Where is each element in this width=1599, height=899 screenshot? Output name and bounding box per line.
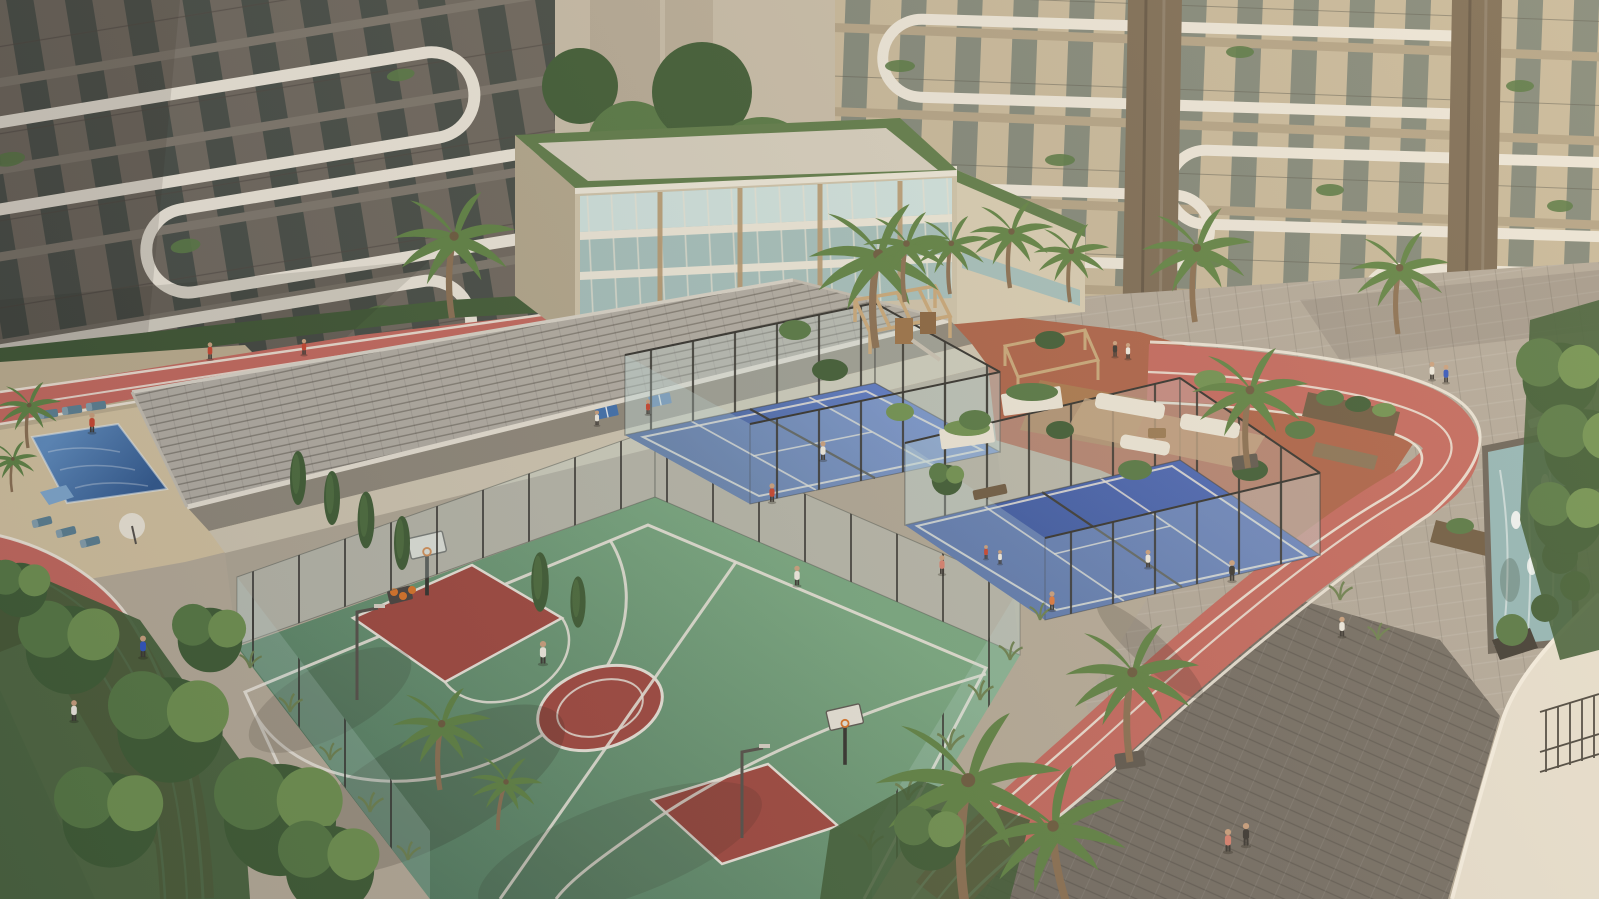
light-overlay [0,0,1599,899]
aerial-render-stage: Aerial architectural rendering of a resi… [0,0,1599,899]
aerial-render: Aerial architectural rendering of a resi… [0,0,1599,899]
